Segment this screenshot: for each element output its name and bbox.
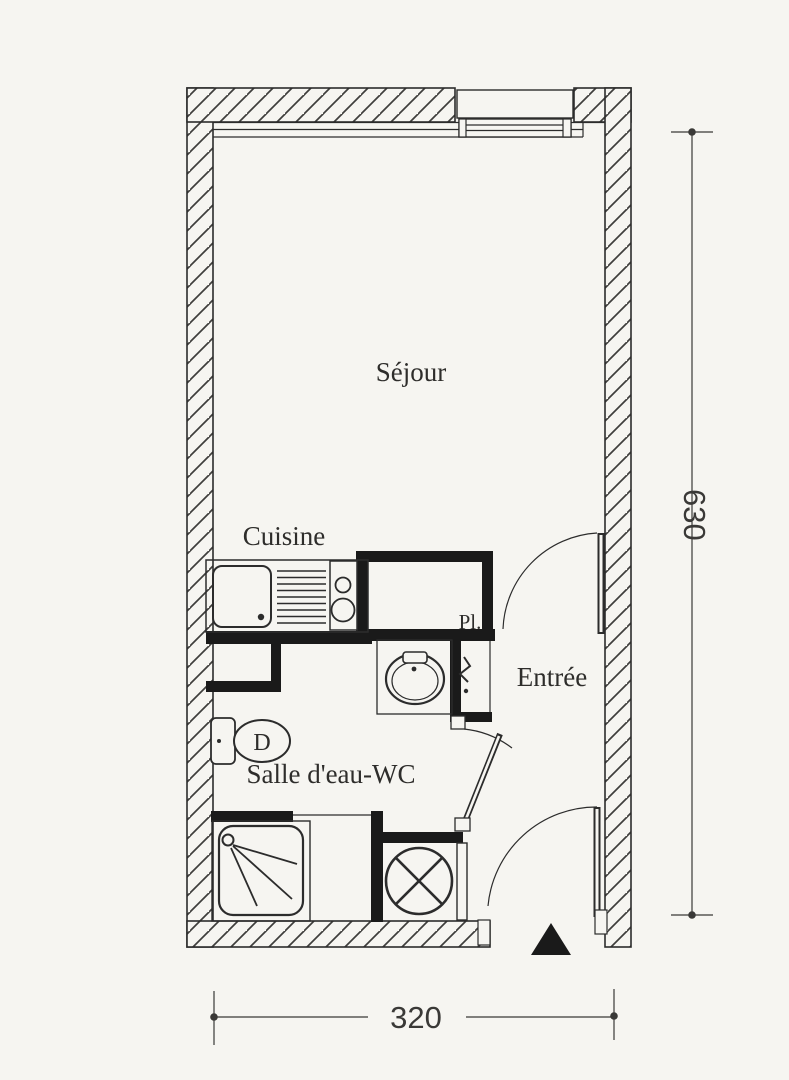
label-sejour: Séjour	[376, 357, 447, 387]
wall-bottom	[187, 921, 490, 947]
dimension-width-value: 320	[390, 1000, 442, 1035]
washbasin	[377, 640, 452, 714]
partition-kitchen-south	[206, 631, 372, 644]
partition-laundry-north	[383, 832, 463, 843]
entrance-door-arc	[488, 807, 597, 906]
bathroom-door-jamb-top	[451, 716, 465, 729]
sink-drain	[258, 614, 264, 620]
wall-right	[605, 88, 631, 947]
bathroom-door-jamb-bottom	[455, 818, 470, 831]
partition-placard-east	[482, 551, 493, 641]
label-cuisine: Cuisine	[243, 521, 326, 551]
scanned-floor-plan-page: D Séjour Cuisine Pl.	[0, 0, 789, 1080]
burner-small	[336, 578, 351, 593]
bathroom-door	[451, 716, 512, 831]
label-salle-eau-wc: Salle d'eau-WC	[246, 759, 415, 789]
water-heater-zigzag	[460, 657, 470, 682]
entrance-marker-triangle	[531, 923, 571, 955]
burner-large	[332, 599, 355, 622]
window	[457, 90, 573, 137]
window-jamb-left	[459, 119, 466, 137]
partition-laundry-west	[371, 811, 383, 922]
label-placard: Pl.	[459, 610, 482, 634]
partition-placard-north	[356, 551, 493, 562]
entrance-door	[478, 807, 607, 945]
washbasin-tap	[403, 652, 427, 663]
kitchen-sink	[213, 566, 271, 627]
drainboard	[277, 571, 326, 623]
shower	[212, 821, 310, 921]
washing-machine	[386, 848, 452, 914]
toilet-tank	[211, 718, 235, 764]
window-jamb-right	[563, 119, 571, 137]
cooktop	[330, 561, 357, 630]
entrance-jamb-right	[595, 910, 607, 934]
label-entree: Entrée	[517, 662, 587, 692]
dimension-width: 320	[210, 989, 618, 1045]
sejour-door	[503, 533, 601, 634]
laundry-east-wall	[457, 843, 467, 920]
floor-plan-drawing: D Séjour Cuisine Pl.	[0, 0, 789, 1080]
wall-top-left-segment	[187, 88, 455, 122]
shower-head	[223, 835, 234, 846]
dimension-height: 630	[671, 128, 713, 919]
toilet: D	[211, 718, 290, 764]
dimension-height-value: 630	[677, 489, 712, 541]
toilet-bowl-mark: D	[253, 730, 270, 756]
entrance-jamb-left	[478, 920, 490, 945]
partition-l-bar	[206, 681, 281, 692]
wall-left	[187, 88, 213, 947]
bathroom-door-arc	[464, 729, 512, 748]
sejour-door-arc	[503, 533, 597, 629]
placard-closet	[460, 641, 490, 712]
